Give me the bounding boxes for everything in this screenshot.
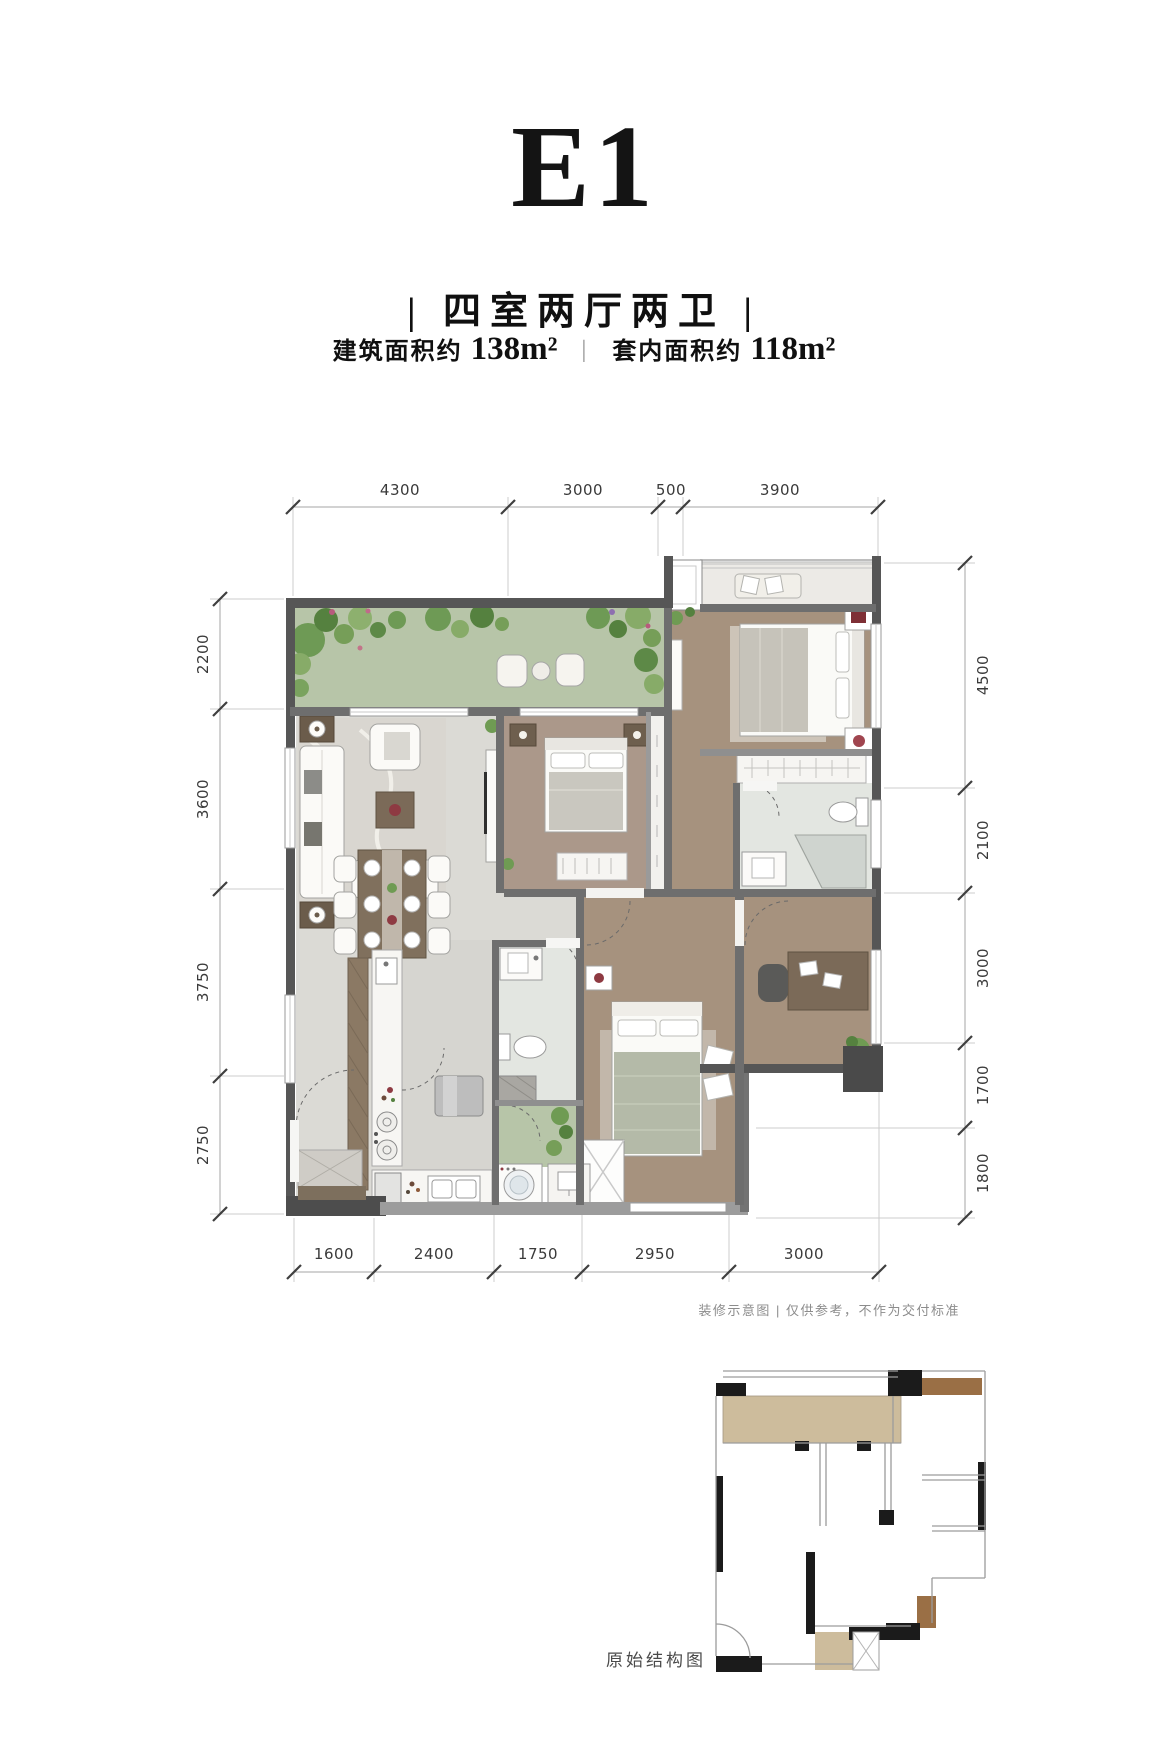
range-hood-column <box>435 1076 483 1116</box>
dim-bottom-5: 3000 <box>784 1245 824 1263</box>
tv-cabinet <box>486 750 497 862</box>
dim-top-1: 4300 <box>380 481 420 499</box>
bedroom2-wardrobe <box>557 853 627 880</box>
structural-brown-band <box>922 1378 982 1395</box>
floor-plan-graphic <box>0 0 1168 1751</box>
dim-left-2: 3600 <box>194 779 212 819</box>
dim-top-4: 3900 <box>760 481 800 499</box>
dim-right-4: 1700 <box>974 1065 992 1105</box>
dim-right-5: 1800 <box>974 1153 992 1193</box>
dining-furniture <box>334 850 450 958</box>
dim-bottom-2: 2400 <box>414 1245 454 1263</box>
burner <box>377 1140 397 1160</box>
floor-cushion <box>703 1074 733 1101</box>
dim-left-1: 2200 <box>194 634 212 674</box>
dim-right-1: 4500 <box>974 655 992 695</box>
dim-right-3: 3000 <box>974 948 992 988</box>
dim-top-3: 500 <box>656 481 686 499</box>
dim-bottom-3: 1750 <box>518 1245 558 1263</box>
desk-chair <box>758 964 788 1002</box>
structural-balcony-tan <box>723 1396 901 1443</box>
disclaimer-note: 装修示意图 | 仅供参考，不作为交付标准 <box>698 1300 960 1319</box>
dim-left-3: 3750 <box>194 962 212 1002</box>
guest-toilet <box>514 1036 546 1058</box>
structural-plan-label: 原始结构图 <box>606 1646 706 1671</box>
dim-right-2: 2100 <box>974 820 992 860</box>
dim-bottom-4: 2950 <box>635 1245 675 1263</box>
corner-column <box>843 1046 883 1092</box>
toilet <box>829 802 857 822</box>
dim-bottom-1: 1600 <box>314 1245 354 1263</box>
kitchen-floor <box>402 940 495 1205</box>
dim-top-2: 3000 <box>563 481 603 499</box>
art-box <box>851 611 866 623</box>
structural-plan <box>716 1370 986 1672</box>
tv <box>484 772 487 834</box>
floor-plan-page: E1 | 四室两厅两卫 | 建筑面积约 138m² | 套内面积约 118m² <box>0 0 1168 1751</box>
burner <box>377 1112 397 1132</box>
dim-left-4: 2750 <box>194 1125 212 1165</box>
flower-decor <box>853 735 865 747</box>
